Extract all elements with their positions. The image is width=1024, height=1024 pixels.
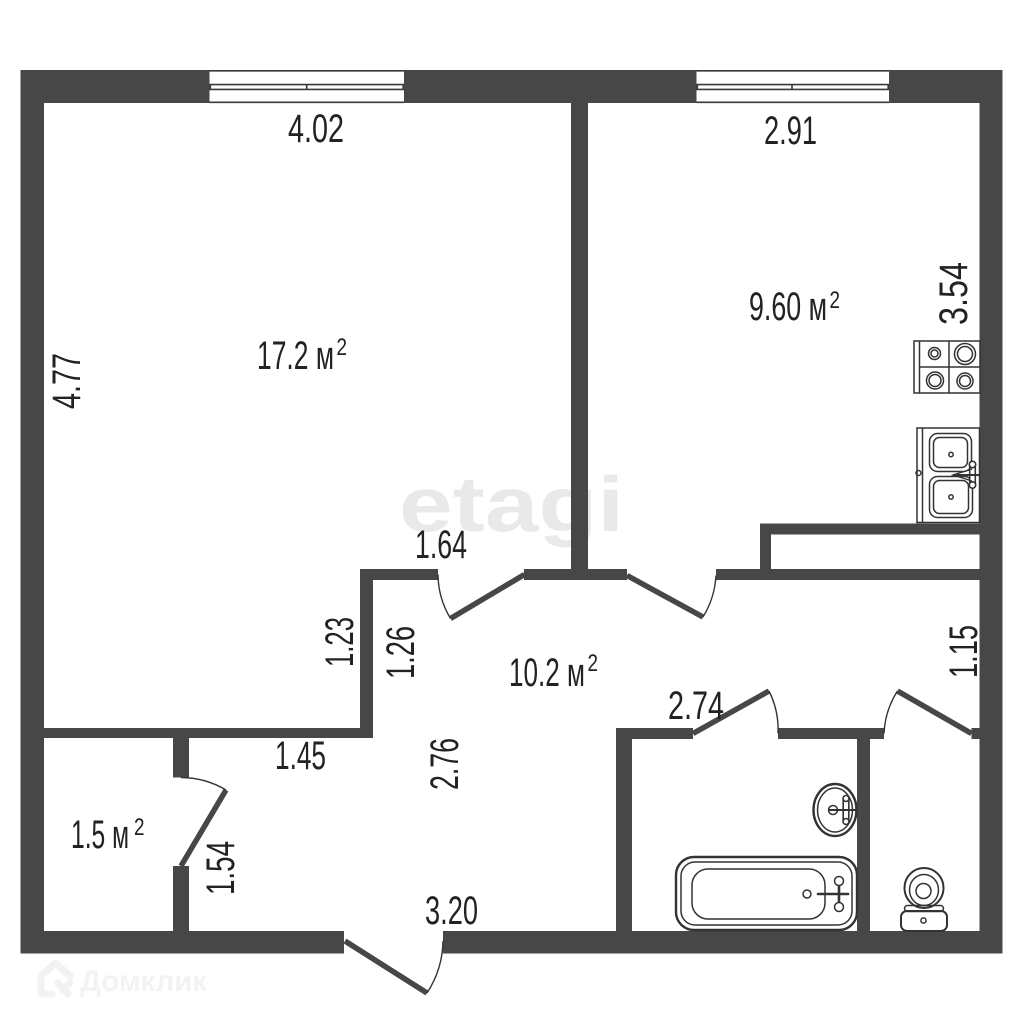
svg-text:2: 2 bbox=[588, 650, 599, 677]
svg-text:10.2 м: 10.2 м bbox=[509, 651, 585, 695]
svg-text:4.02: 4.02 bbox=[288, 107, 344, 151]
svg-text:1.54: 1.54 bbox=[199, 841, 243, 895]
svg-text:1.15: 1.15 bbox=[942, 625, 986, 678]
svg-text:2: 2 bbox=[337, 334, 348, 361]
svg-text:2.74: 2.74 bbox=[668, 684, 724, 728]
svg-text:1.26: 1.26 bbox=[379, 626, 423, 679]
svg-text:1.23: 1.23 bbox=[318, 617, 362, 667]
svg-text:1.45: 1.45 bbox=[275, 734, 326, 778]
svg-text:3.54: 3.54 bbox=[932, 262, 976, 325]
svg-text:2.91: 2.91 bbox=[764, 109, 817, 153]
svg-text:2: 2 bbox=[830, 287, 841, 314]
svg-text:3.20: 3.20 bbox=[425, 889, 478, 933]
svg-text:17.2 м: 17.2 м bbox=[257, 334, 334, 378]
svg-text:1.5 м: 1.5 м bbox=[71, 813, 129, 857]
svg-text:1.64: 1.64 bbox=[415, 523, 467, 567]
svg-text:Домклик: Домклик bbox=[80, 965, 208, 998]
svg-text:2: 2 bbox=[134, 814, 145, 841]
svg-text:9.60 м: 9.60 м bbox=[749, 285, 827, 329]
svg-text:4.77: 4.77 bbox=[45, 353, 89, 409]
svg-text:2.76: 2.76 bbox=[423, 738, 467, 790]
